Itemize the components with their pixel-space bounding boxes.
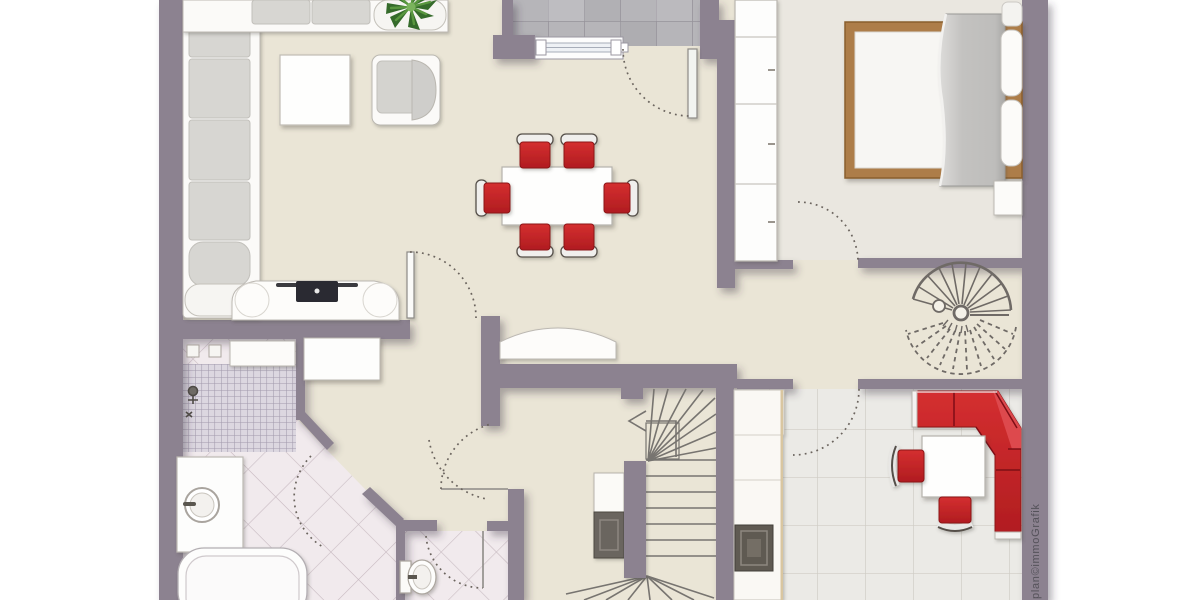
svg-text:plan©immoGrafik: plan©immoGrafik	[1030, 503, 1042, 599]
